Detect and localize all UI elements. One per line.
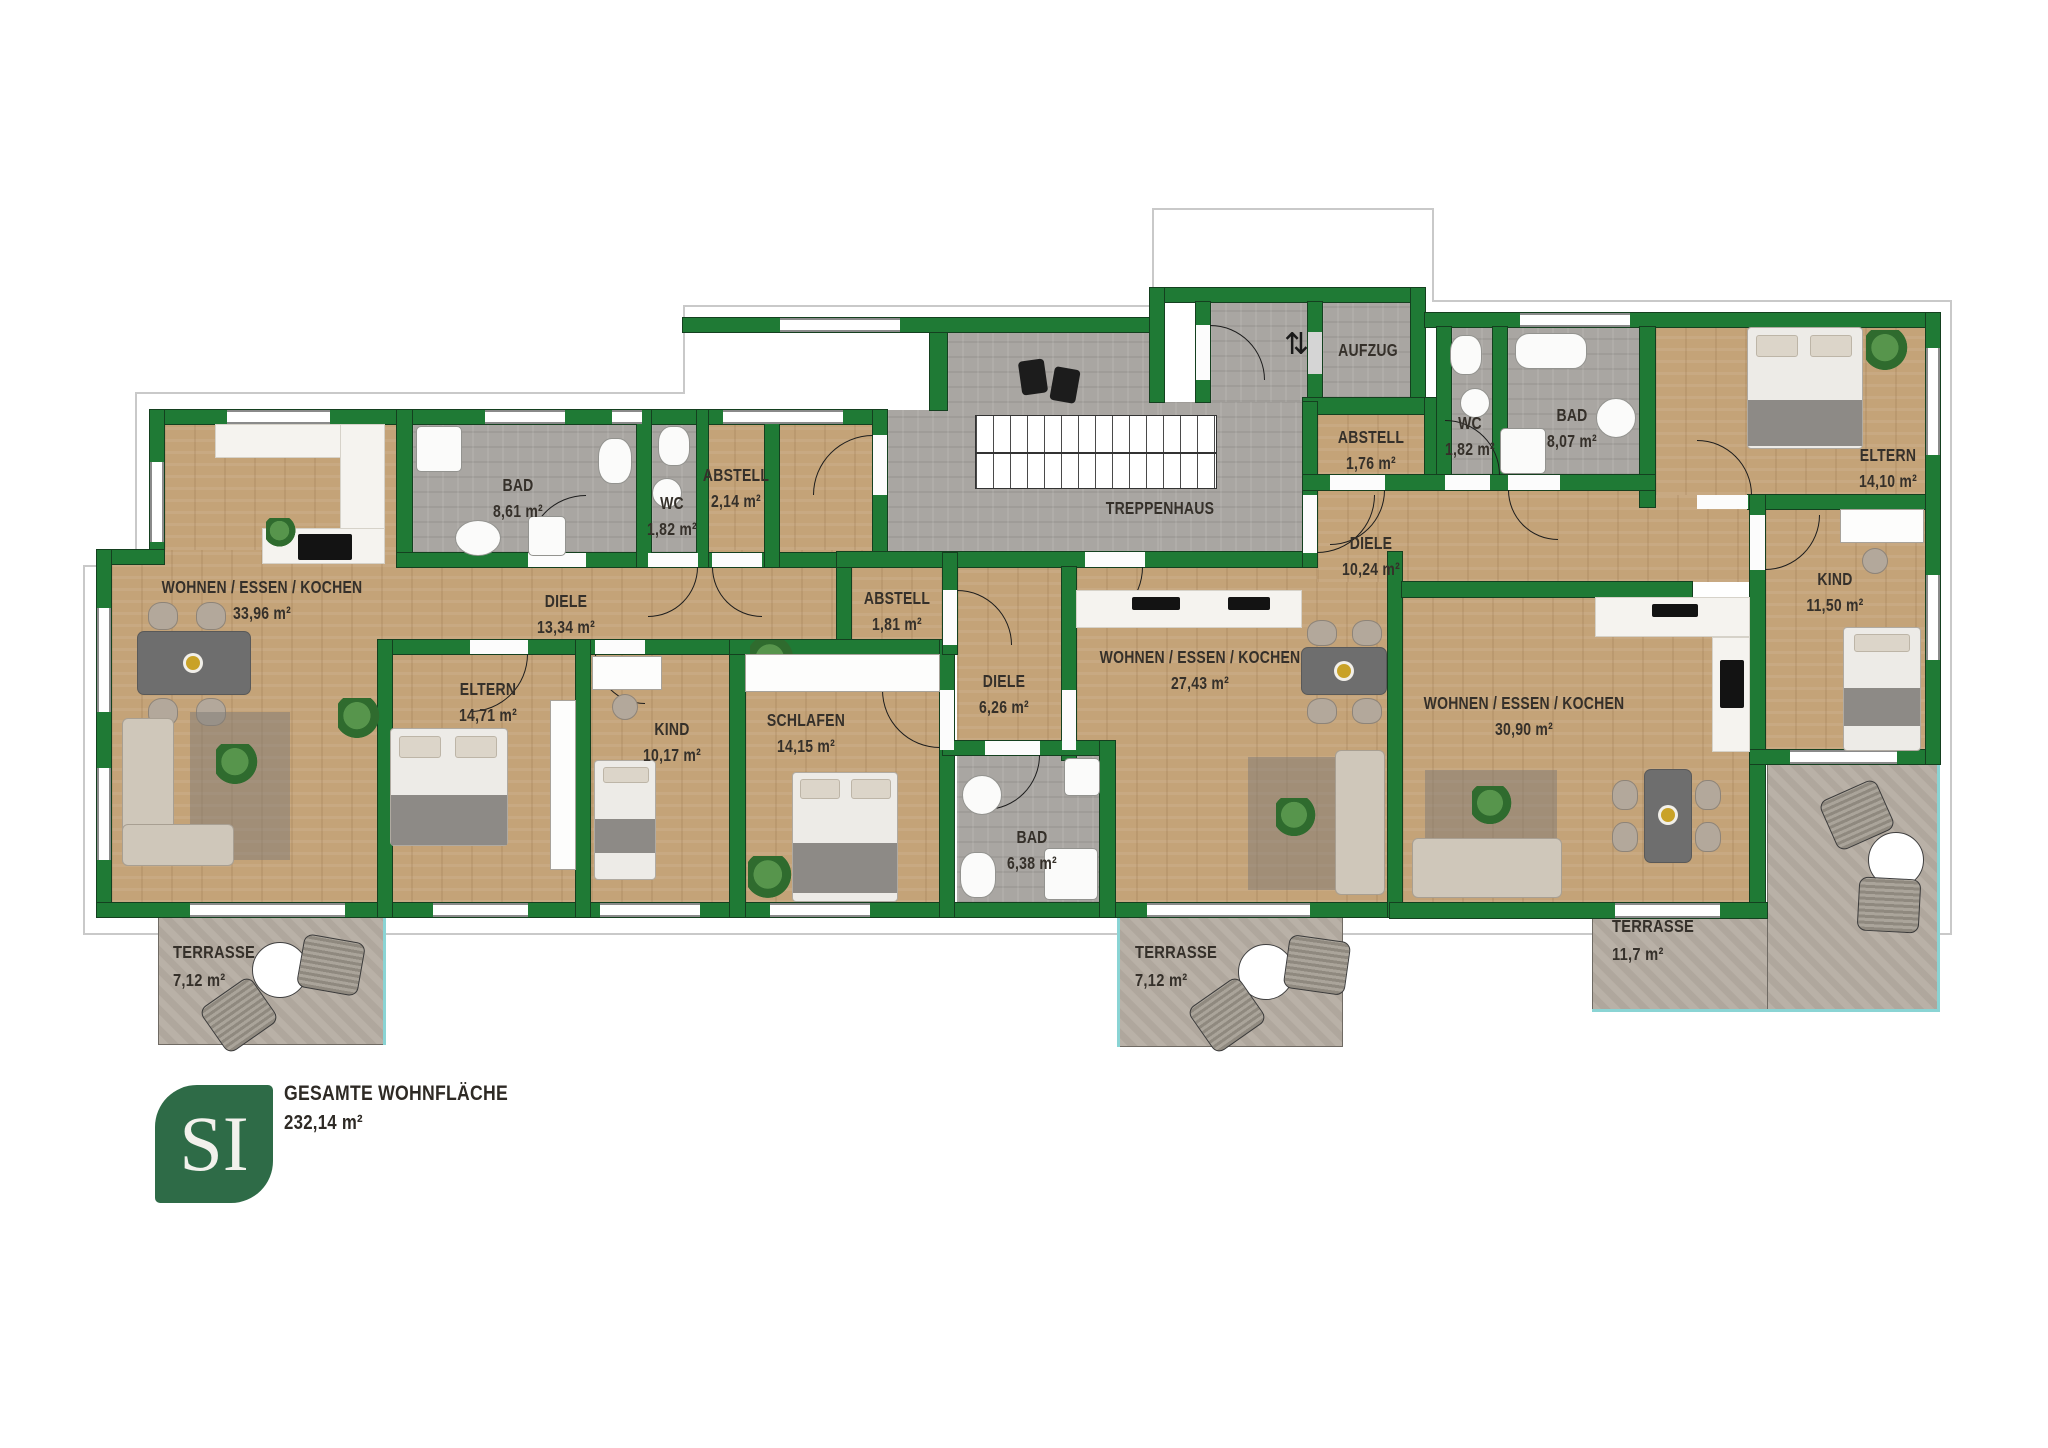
wardrobe (745, 654, 940, 692)
company-logo: SI (155, 1085, 273, 1203)
terrace-railing (1937, 763, 1940, 1012)
window (1520, 313, 1630, 327)
room-label-elevator: AUFZUG (1338, 337, 1398, 363)
desk (1840, 509, 1924, 543)
door-opening (985, 741, 1040, 755)
door-opening (1697, 495, 1748, 509)
door-opening (470, 640, 528, 654)
chair (1307, 620, 1337, 646)
room-label-storage-1: ABSTELL2,14 m² (703, 462, 769, 515)
logo-text: SI (179, 1099, 248, 1189)
chair (1307, 698, 1337, 724)
room-label-bedroom-2: SCHLAFEN14,15 m² (767, 707, 845, 760)
wall (940, 640, 954, 917)
chair (1612, 822, 1638, 852)
room-label-bath-3: BAD8,07 m² (1547, 402, 1597, 455)
window (1926, 348, 1940, 455)
bathtub (1515, 333, 1587, 369)
wall (1402, 582, 1692, 597)
bed-parents (1747, 327, 1863, 449)
building-outline (83, 565, 85, 935)
table-decor (186, 656, 200, 670)
toilet (960, 852, 996, 898)
room-label-stairwell: TREPPENHAUS (1106, 495, 1214, 521)
room-label-living-3: WOHNEN / ESSEN / KOCHEN30,90 m² (1424, 690, 1625, 743)
window (600, 903, 700, 917)
building-outline (683, 305, 1152, 307)
wall (1425, 313, 1940, 327)
bed-child (1843, 627, 1921, 751)
door-opening (943, 590, 957, 645)
terrace-door (190, 903, 345, 917)
terrace-label-2: TERRASSE7,12 m² (1135, 938, 1217, 994)
window (612, 410, 642, 424)
room-label-hall-2: DIELE6,26 m² (979, 668, 1029, 721)
door-opening (1085, 552, 1145, 567)
terrace-door (1147, 903, 1310, 917)
room-label-wc-3: WC1,82 m² (1445, 410, 1495, 463)
wall (1388, 552, 1402, 917)
room-label-parents-1: ELTERN14,71 m² (459, 676, 517, 729)
window (227, 410, 330, 424)
sink-dark (1132, 597, 1180, 610)
wall (837, 552, 1317, 567)
building-outline (135, 392, 685, 394)
stroller-icon (1018, 358, 1048, 395)
plant (1866, 330, 1908, 372)
shower (416, 426, 462, 472)
door-opening (1196, 325, 1210, 380)
plant (338, 698, 380, 740)
room-label-bath-1: BAD8,61 m² (493, 472, 543, 525)
building-outline (1950, 300, 1952, 935)
staircase (975, 415, 1217, 489)
sofa (1412, 838, 1562, 898)
sink (455, 520, 501, 556)
toilet (598, 438, 632, 484)
cooktop (298, 534, 352, 560)
sofa (1335, 750, 1385, 895)
chair (1695, 822, 1721, 852)
sink (1596, 398, 1636, 438)
sink-dark (1652, 604, 1698, 617)
door-opening (940, 690, 954, 750)
wall (97, 550, 111, 917)
window (770, 903, 870, 917)
window (97, 608, 111, 712)
floor-stairwell (887, 410, 947, 553)
toilet (658, 426, 690, 466)
terrace-railing (1592, 1009, 1940, 1012)
toilet (1450, 335, 1482, 375)
floor-plan: ⇅ (0, 0, 2048, 1448)
bed-parents (390, 728, 508, 846)
room-label-living-2: WOHNEN / ESSEN / KOCHEN27,43 m² (1100, 644, 1301, 697)
window (723, 410, 843, 424)
elevator-direction-icon: ⇅ (1284, 330, 1309, 360)
room-label-hall-1: DIELE13,34 m² (537, 588, 595, 641)
elevator-door (1308, 332, 1322, 374)
chair (1612, 780, 1638, 810)
door-opening (873, 435, 887, 495)
room-label-child-1: KIND10,17 m² (643, 716, 701, 769)
wall (837, 553, 851, 654)
door-opening (595, 640, 645, 654)
sink (962, 775, 1002, 815)
wall (1303, 398, 1425, 414)
desk (592, 656, 662, 690)
chair (1695, 780, 1721, 810)
wall (637, 410, 651, 567)
door-opening (1750, 515, 1765, 570)
bed-double (792, 772, 898, 902)
room-label-parents-3: ELTERN14,10 m² (1859, 442, 1917, 495)
building-outline (135, 392, 137, 567)
plant (266, 518, 296, 548)
terrace-chair (1283, 934, 1352, 996)
cooktop (1228, 597, 1270, 610)
room-label-storage-2: ABSTELL1,81 m² (864, 585, 930, 638)
terrace-label-1: TERRASSE7,12 m² (173, 938, 255, 994)
terrace-railing (1117, 917, 1120, 1047)
room-label-living-1: WOHNEN / ESSEN / KOCHEN33,96 m² (162, 574, 363, 627)
door-opening (1062, 690, 1076, 750)
wall (683, 318, 1160, 332)
chair (1352, 620, 1382, 646)
wall (397, 410, 412, 567)
window (1926, 575, 1940, 660)
plant (216, 744, 258, 786)
window (97, 768, 111, 860)
room-label-wc-1: WC1,82 m² (647, 490, 697, 543)
plant (1276, 798, 1316, 838)
wall (730, 640, 745, 917)
building-outline (1152, 208, 1434, 210)
terrace-chair (1857, 876, 1922, 933)
total-area-label: GESAMTE WOHNFLÄCHE (284, 1082, 508, 1106)
building-outline (1432, 300, 1952, 302)
table-decor (1661, 808, 1675, 822)
wall (1411, 288, 1425, 402)
wall (1150, 288, 1425, 302)
door-opening (712, 553, 762, 567)
cooktop (1720, 660, 1744, 708)
window (485, 410, 565, 424)
desk-chair (1862, 548, 1888, 574)
window (1790, 750, 1897, 764)
door-opening (1330, 475, 1385, 490)
table-decor (1337, 664, 1351, 678)
room-label-child-3: KIND11,50 m² (1806, 566, 1863, 619)
terrace-railing (383, 917, 386, 1045)
kitchen-counter (1595, 597, 1750, 637)
building-outline (1432, 208, 1434, 302)
room-label-bath-2: BAD6,38 m² (1007, 824, 1057, 877)
terrace-chair (296, 933, 366, 997)
door-opening (648, 553, 698, 567)
wall (1150, 288, 1164, 402)
chair (1352, 698, 1382, 724)
window (150, 462, 164, 542)
total-area-value: 232,14 m² (284, 1112, 363, 1135)
wall (576, 640, 590, 917)
wardrobe (550, 700, 576, 870)
wall (1748, 495, 1940, 509)
room-label-storage-3: ABSTELL1,76 m² (1338, 424, 1404, 477)
terrace-label-3: TERRASSE11,7 m² (1612, 912, 1694, 968)
door-opening (1508, 475, 1560, 490)
desk-chair (612, 694, 638, 720)
shower (1500, 428, 1546, 474)
door-opening (1445, 475, 1490, 490)
plant (748, 856, 792, 900)
sofa (122, 824, 234, 866)
bed-child (594, 760, 656, 880)
plant (1472, 786, 1512, 826)
window (780, 318, 900, 332)
window (433, 903, 528, 917)
door-opening (1303, 495, 1317, 553)
wall (1100, 741, 1115, 917)
room-label-hall-3: DIELE10,24 m² (1342, 530, 1400, 583)
washing-machine (1064, 758, 1100, 796)
